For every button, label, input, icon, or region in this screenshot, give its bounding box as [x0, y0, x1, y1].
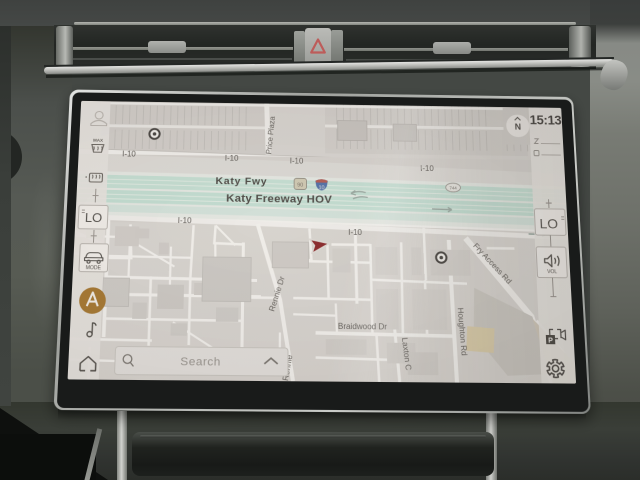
svg-text:VOL: VOL	[547, 269, 558, 275]
svg-text:I-10: I-10	[178, 216, 192, 225]
svg-text:Katy Freeway HOV: Katy Freeway HOV	[226, 192, 333, 206]
svg-text:MAX: MAX	[93, 138, 103, 143]
svg-text:I-10: I-10	[122, 149, 136, 158]
svg-text:LO: LO	[85, 211, 103, 226]
svg-text:744: 744	[449, 185, 457, 190]
svg-text:Search: Search	[180, 355, 221, 369]
svg-text:Katy Fwy: Katy Fwy	[215, 176, 267, 188]
svg-text:LO: LO	[539, 216, 558, 232]
svg-text:15:13: 15:13	[529, 112, 562, 127]
svg-text:MODE: MODE	[86, 265, 102, 272]
svg-text:N: N	[515, 122, 522, 132]
svg-text:I-10: I-10	[225, 154, 239, 163]
svg-text:I-10: I-10	[290, 156, 304, 165]
svg-text:I-10: I-10	[420, 164, 434, 173]
svg-text:10: 10	[319, 185, 325, 191]
svg-text:Braidwood Dr: Braidwood Dr	[338, 321, 388, 331]
svg-text:90: 90	[297, 182, 303, 188]
svg-text:I-10: I-10	[348, 228, 362, 237]
